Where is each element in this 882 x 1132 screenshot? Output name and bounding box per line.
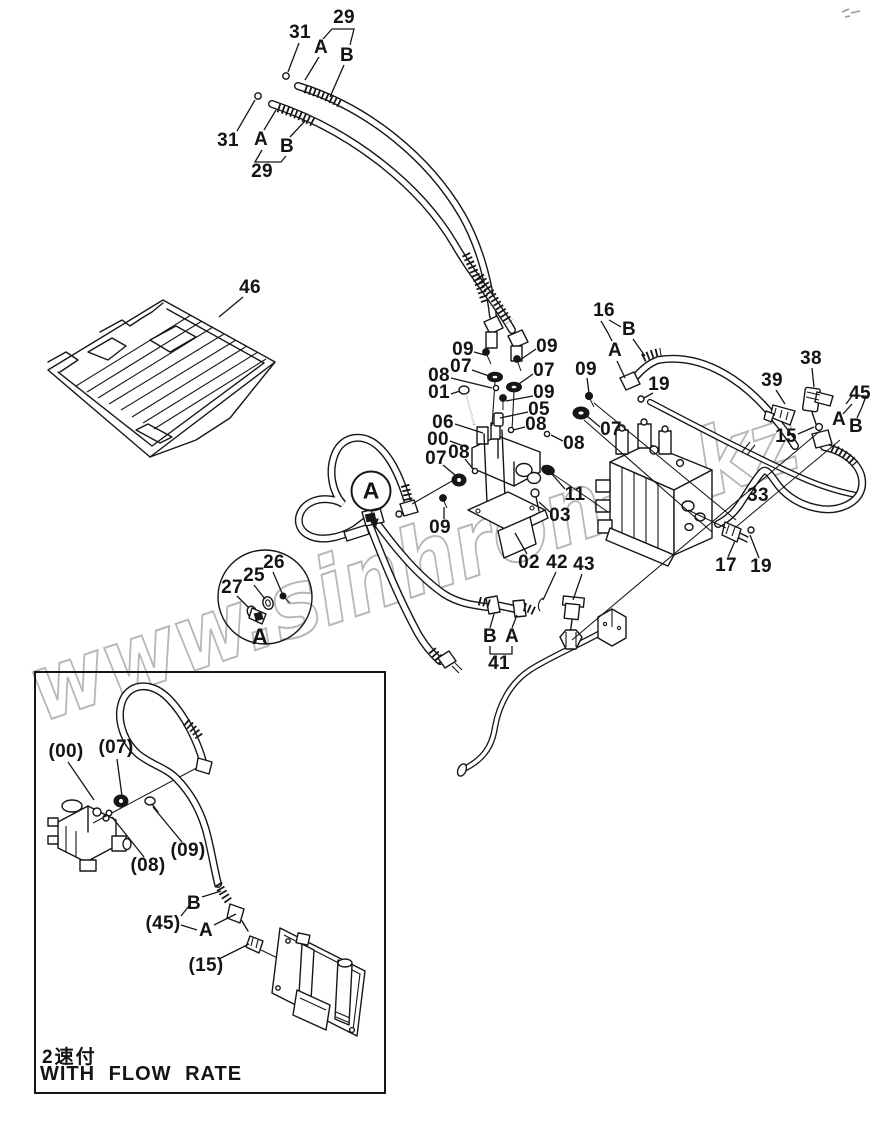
floor-plate-46: [48, 300, 275, 457]
diagram-artwork: www.sinhron-t.kz: [0, 0, 882, 1132]
parts-diagram-page: www.sinhron-t.kz: [0, 0, 882, 1132]
bottom-hose-and-pipe: [456, 596, 626, 777]
hose-29-pair: [255, 73, 528, 361]
corner-mark: [842, 9, 860, 17]
inset-with-flow-rate: [35, 672, 385, 1093]
